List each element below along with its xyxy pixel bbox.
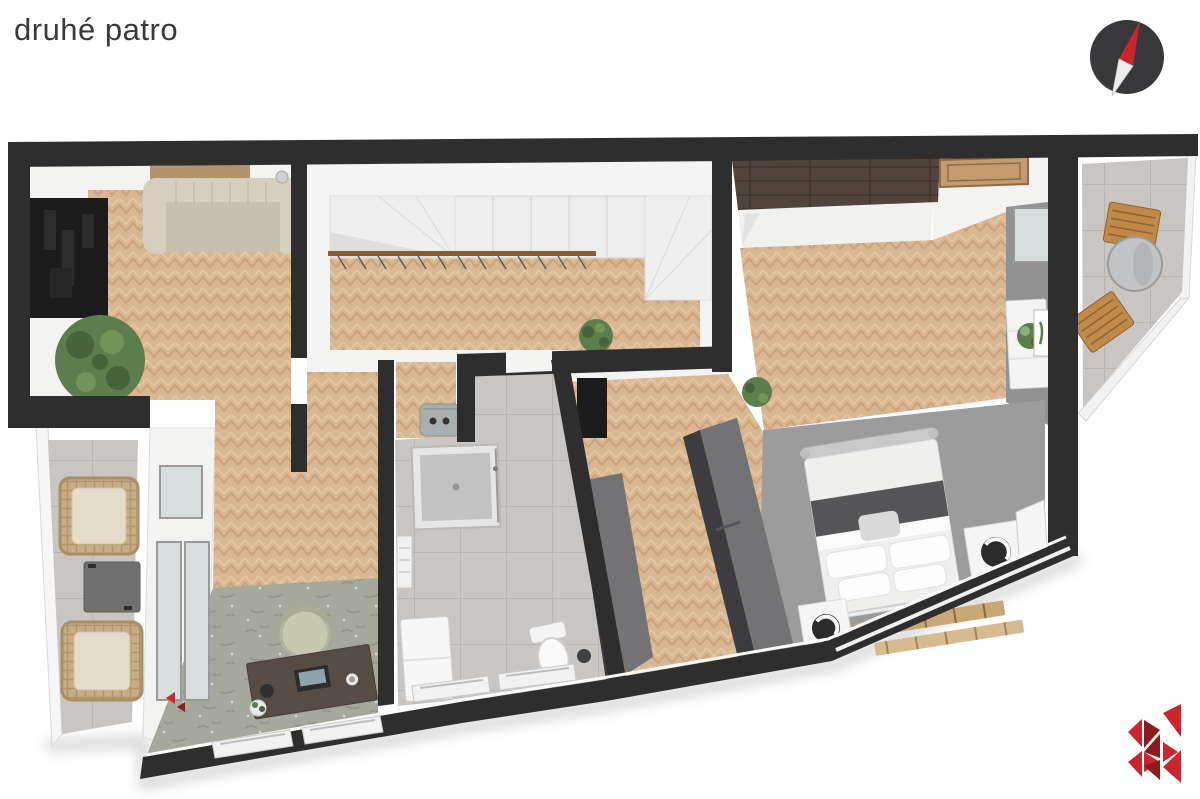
hall-plant-icon: [579, 319, 613, 353]
balcony-table: [84, 562, 140, 612]
living-plant-icon: [55, 315, 145, 405]
wall-bedroom-right: [1048, 138, 1078, 556]
corridor-items: [420, 404, 460, 436]
sofa: [143, 178, 295, 254]
wall-bath-left: [378, 360, 394, 706]
window-small: [160, 466, 202, 518]
wall-shelf: [150, 164, 250, 180]
wall-living-right-a: [291, 142, 307, 358]
attic-hatch: [940, 157, 1028, 187]
waste-bin: [577, 649, 591, 663]
window-tall-2: [185, 542, 209, 700]
door-gap: [506, 350, 552, 373]
floor-bedroom-darkwood: [732, 155, 940, 210]
radiator: [397, 536, 412, 588]
closet-plant-icon: [742, 377, 772, 407]
wicker-chair-1: [60, 478, 138, 554]
compass-icon: [1090, 20, 1164, 96]
window-tall-1: [157, 542, 181, 700]
desk-flowers-icon: [250, 700, 266, 716]
floor-plan-page: druhé patro: [0, 0, 1200, 799]
wall-lamp-icon: [276, 171, 288, 183]
stair-railing: [328, 251, 596, 256]
black-panel: [577, 378, 607, 438]
wall-bath-stub: [457, 356, 475, 442]
floor-corridor: [307, 372, 378, 438]
brand-k-logo: [1128, 704, 1181, 783]
wall-left: [8, 142, 30, 400]
wall-left-bottom: [8, 396, 150, 428]
page-title: druhé patro: [14, 12, 178, 48]
wall-hall-bedroom: [712, 142, 732, 372]
wall-living-right-b: [291, 404, 307, 472]
bedroom-window: [1014, 208, 1050, 262]
shower: [412, 445, 501, 530]
office-chair: [281, 609, 329, 658]
floor-plan-render: [0, 0, 1200, 799]
wicker-chair-2: [62, 622, 142, 700]
